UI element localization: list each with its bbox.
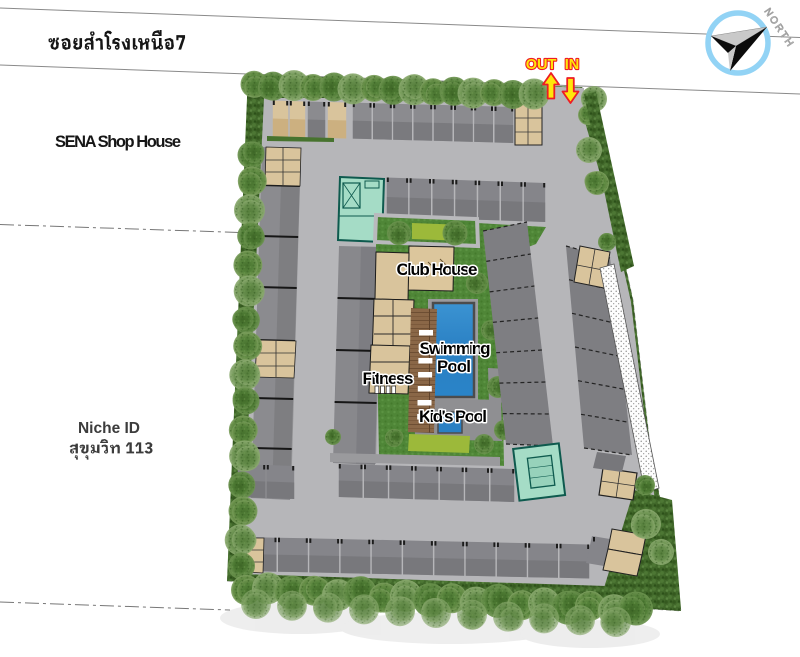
svg-text:IN: IN bbox=[565, 57, 580, 73]
svg-text:Kid's Pool: Kid's Pool bbox=[419, 407, 487, 426]
svg-text:Pool: Pool bbox=[437, 357, 471, 376]
svg-text:Swimming: Swimming bbox=[420, 339, 491, 358]
svg-text:Club House: Club House bbox=[397, 260, 478, 279]
svg-text:Fitness: Fitness bbox=[363, 369, 414, 388]
svg-text:SENA Shop House: SENA Shop House bbox=[55, 133, 181, 151]
svg-text:OUT: OUT bbox=[526, 57, 557, 73]
svg-text:Niche ID: Niche ID bbox=[78, 420, 140, 437]
